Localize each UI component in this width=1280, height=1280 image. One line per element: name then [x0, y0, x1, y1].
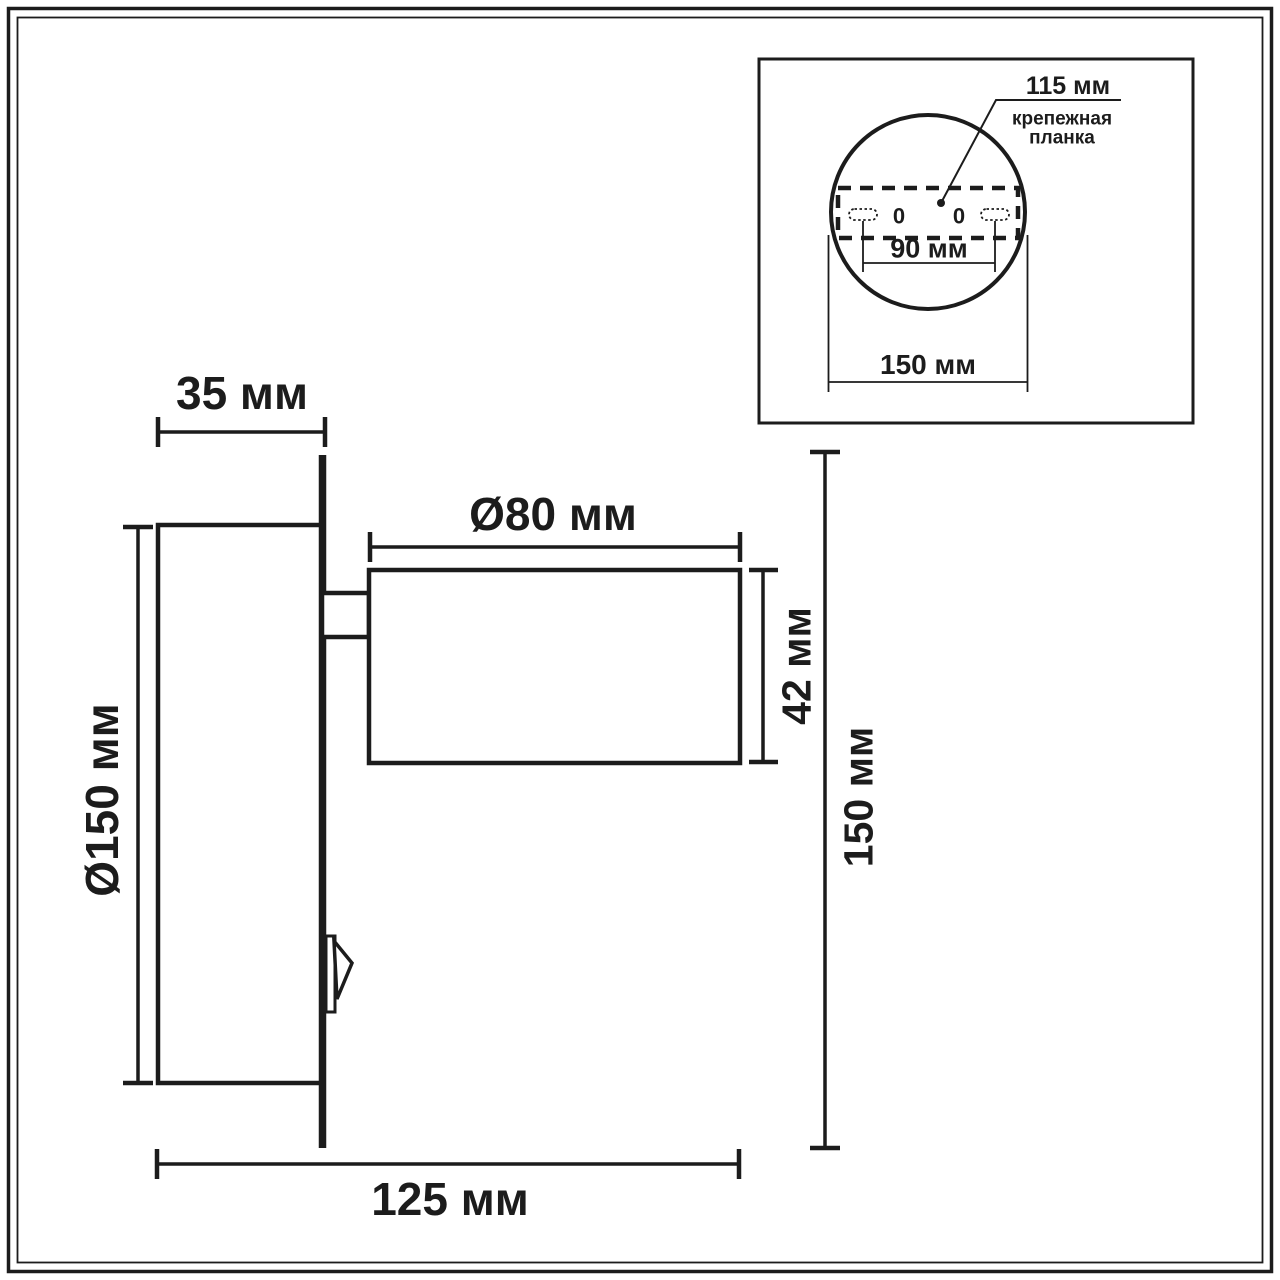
dimension-spot-height: 42 мм [749, 570, 819, 762]
dim-35mm-label: 35 мм [176, 367, 308, 419]
dim-125mm-label: 125 мм [371, 1173, 529, 1225]
dim-150mm-base-label: 150 мм [880, 349, 976, 380]
technical-drawing-wall-lamp: 35 мм Ø80 мм Ø150 мм 42 мм 150 мм [0, 0, 1280, 1280]
bracket-name-line1: крепежная [1012, 109, 1112, 130]
dim-150mm-height-label: 150 мм [835, 727, 881, 867]
slot-hole-right [981, 209, 1009, 220]
dimension-spot-diameter: Ø80 мм [370, 488, 740, 562]
lamp-side-view [158, 455, 740, 1148]
bracket-name-line2: планка [1029, 128, 1095, 149]
dim-150mm-plate-label: Ø150 мм [76, 703, 128, 896]
dim-80mm-label: Ø80 мм [469, 488, 637, 540]
dimension-overall-height: 150 мм [810, 452, 881, 1148]
hole-mark-right: 0 [953, 204, 965, 229]
dimension-overall-depth: 125 мм [157, 1149, 739, 1225]
dimension-plate-diameter: Ø150 мм [76, 527, 153, 1083]
spot-cylinder-outline [369, 570, 740, 763]
switch-lever [334, 941, 352, 999]
switch [326, 936, 352, 1012]
slot-hole-left [849, 209, 877, 220]
dim-42mm-label: 42 мм [773, 607, 819, 725]
hole-mark-left: 0 [893, 204, 905, 229]
wall-plate-outline [158, 525, 322, 1083]
dim-90mm-label: 90 мм [890, 233, 967, 263]
mounting-inset: 0 0 115 мм крепежная планка 90 мм 150 мм [759, 59, 1193, 423]
dimension-plate-depth: 35 мм [156, 367, 327, 447]
arm-outline [322, 593, 369, 637]
bracket-width-label: 115 мм [1026, 72, 1110, 100]
